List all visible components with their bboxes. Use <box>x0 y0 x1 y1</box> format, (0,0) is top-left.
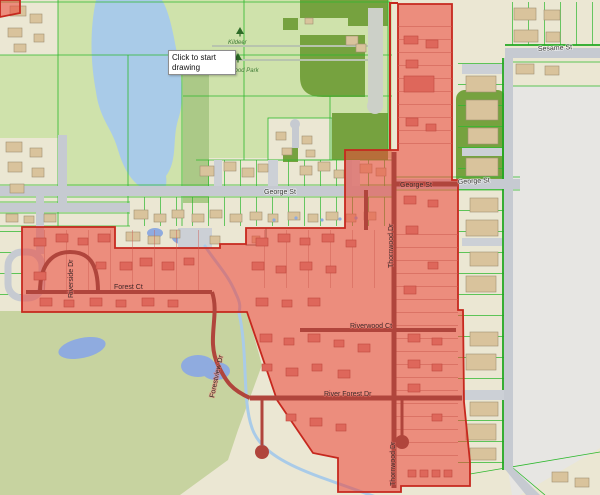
drawing-tooltip: Click to start drawing <box>168 50 236 75</box>
street-label-george-st-west: George St <box>264 189 296 196</box>
park-label-kildeer: Kildeer <box>228 40 248 46</box>
street-label-thornwood-upper: Thornwood Dr <box>388 223 395 268</box>
map-canvas[interactable]: George St George St George St Sesame St … <box>0 0 600 495</box>
street-label-forest-ct: Forest Ct <box>114 284 143 291</box>
street-label-george-st-mid: George St <box>400 182 432 189</box>
street-label-riverside-dr: Riverside Dr <box>68 259 75 298</box>
selection-polygon-corner[interactable] <box>0 0 20 17</box>
street-label-river-forest-dr: River Forest Dr <box>324 391 372 398</box>
street-label-thornwood-lower: Thornwood Dr <box>390 441 397 486</box>
street-label-riverwood-ct: Riverwood Ct <box>350 323 392 330</box>
map-image[interactable]: George St George St George St Sesame St … <box>0 0 600 495</box>
